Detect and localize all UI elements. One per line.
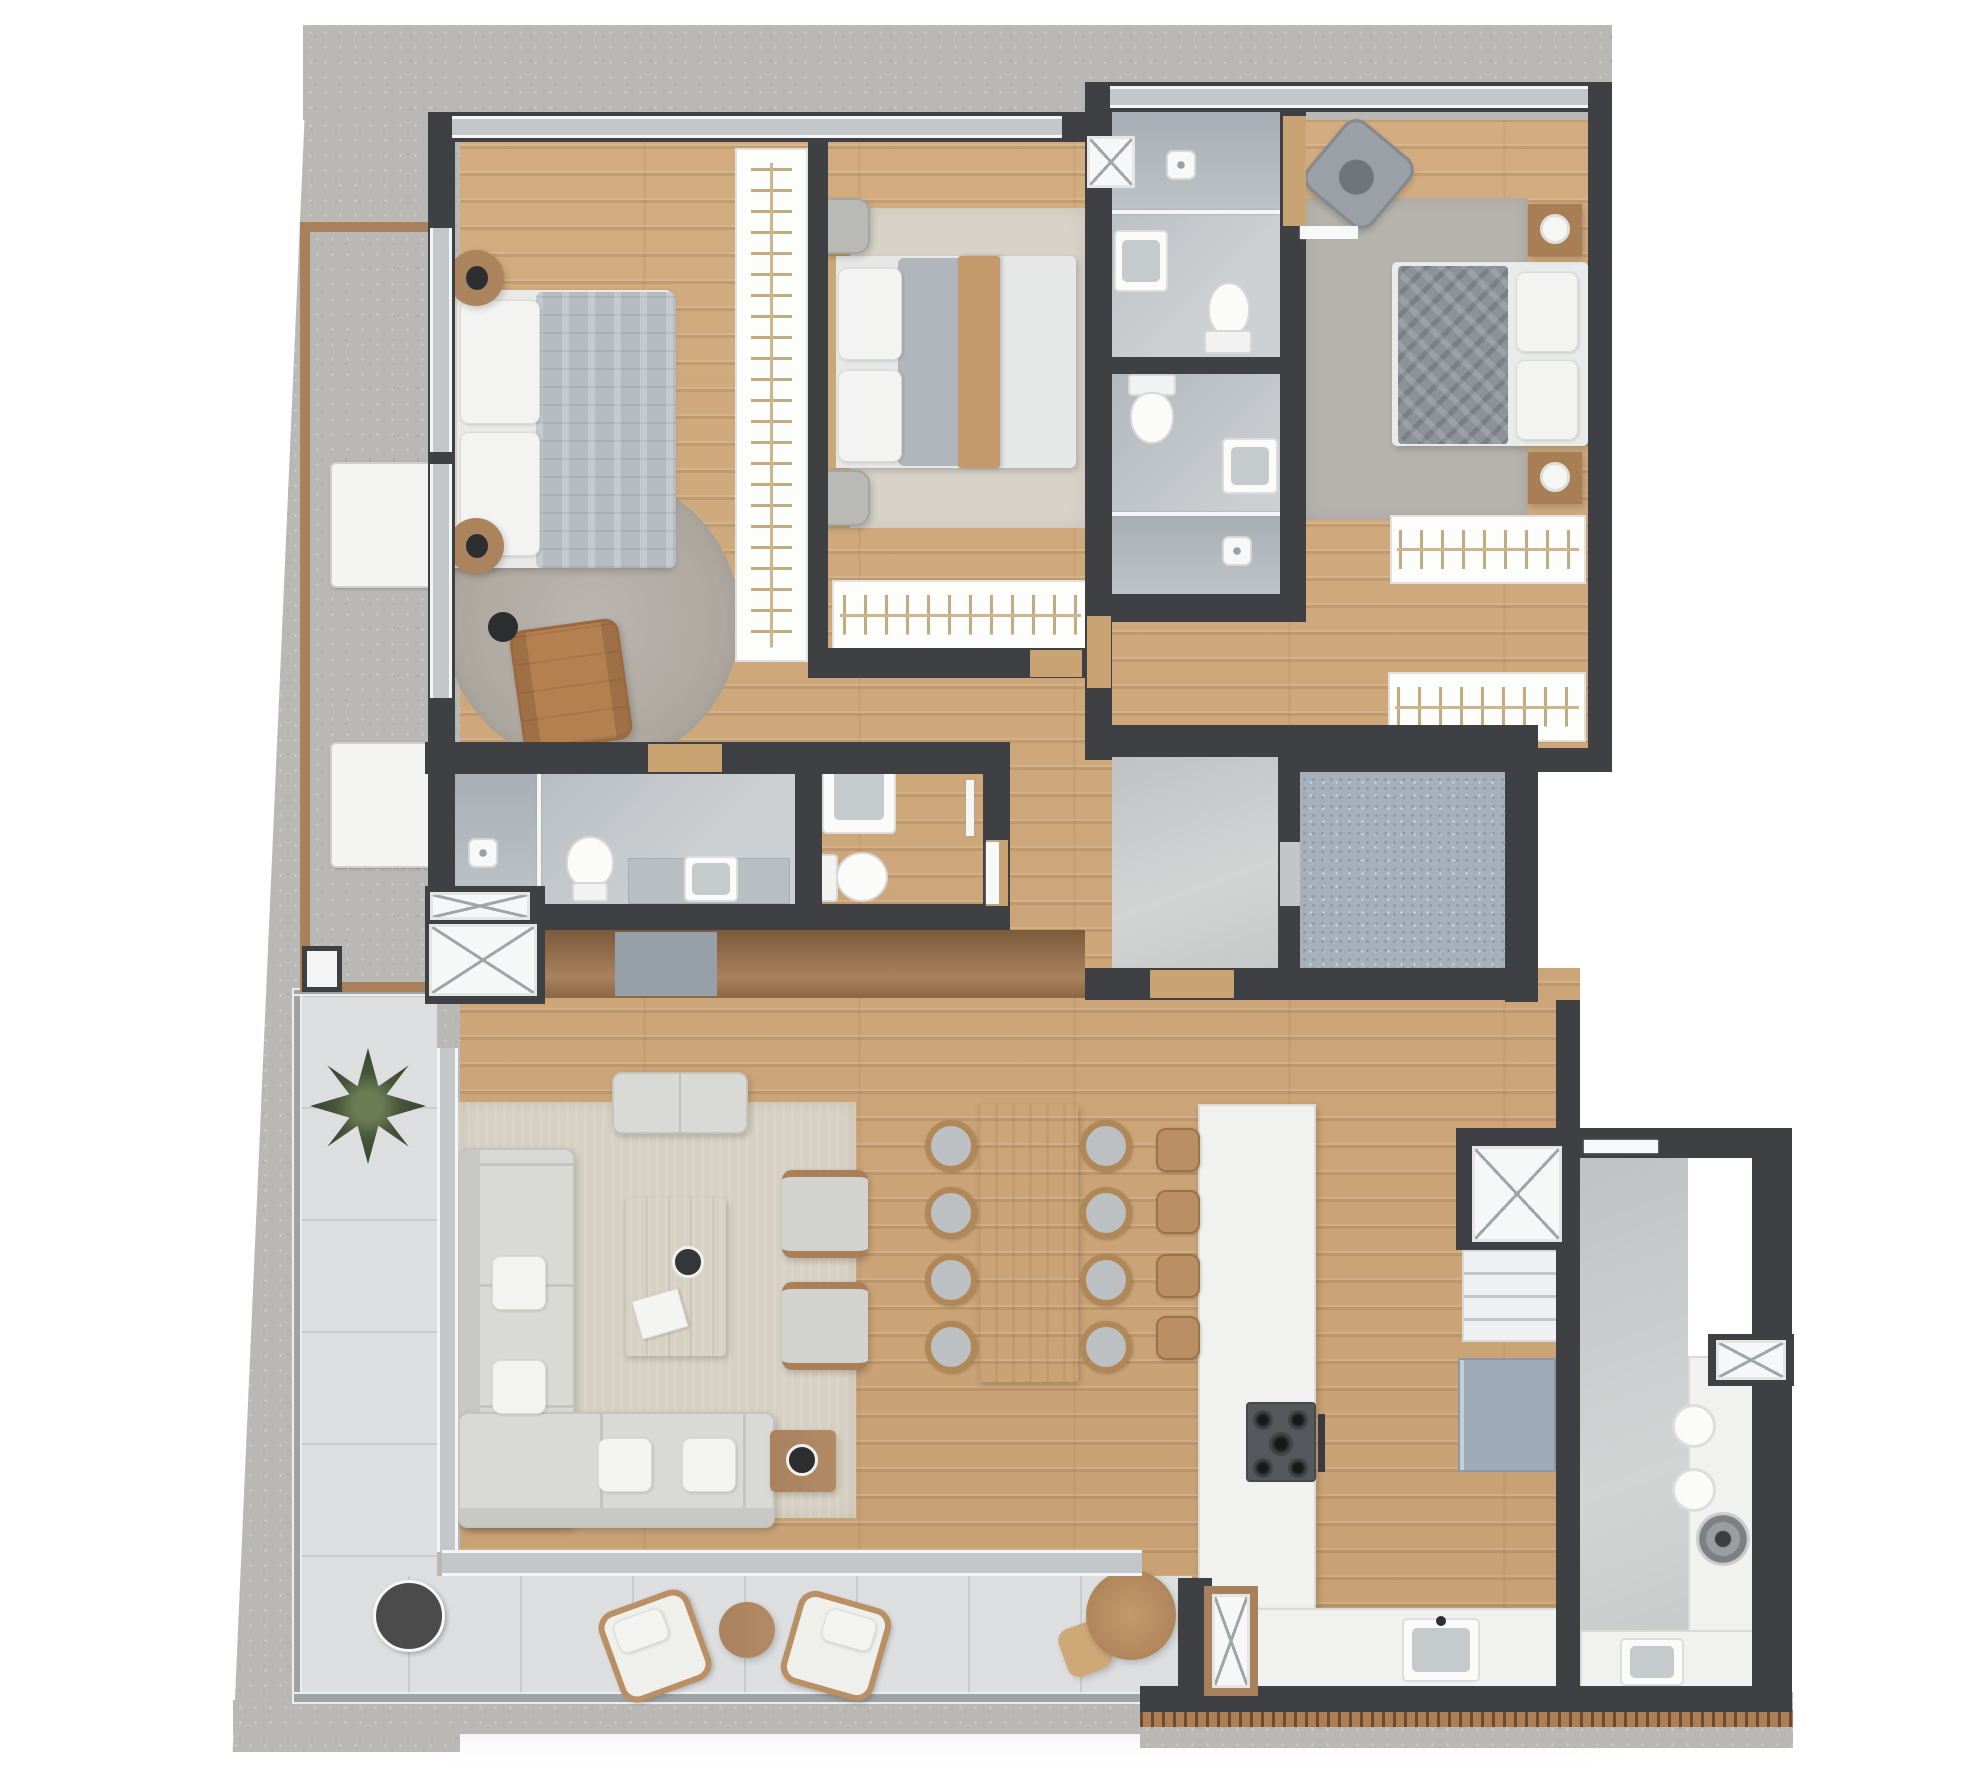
door-gap-foyer — [1150, 970, 1234, 998]
wall-kitchen-east — [1556, 1000, 1580, 1712]
dining-chair — [925, 1120, 977, 1172]
dining-chair — [925, 1187, 977, 1239]
duvet — [536, 292, 676, 568]
concrete-surround-bottom-left — [233, 1700, 1190, 1734]
sink-basin — [834, 768, 884, 820]
refrigerator — [1458, 1358, 1556, 1472]
duvet — [1398, 266, 1508, 444]
door-gap-bedroom3 — [1283, 116, 1306, 226]
balcony-vent — [302, 946, 342, 992]
ac-unit — [330, 462, 438, 588]
sink-basin — [1412, 1628, 1470, 1672]
vent-shaft-x-icon — [1087, 136, 1135, 188]
pillow — [460, 300, 540, 424]
burner — [1253, 1410, 1273, 1430]
pillow — [1516, 360, 1578, 440]
bed-throw — [958, 256, 1000, 468]
pillow — [838, 268, 902, 360]
wall-bedroom3-south — [1300, 748, 1612, 772]
clothes-rack — [832, 580, 1090, 650]
sink-basin — [1630, 1646, 1674, 1678]
window-west-2 — [430, 464, 452, 698]
dining-chair — [1080, 1254, 1132, 1306]
wall-closet-partition — [808, 142, 828, 678]
vent-shaft-x-icon — [1716, 1340, 1786, 1380]
exterior-white-step2 — [1580, 968, 1612, 1128]
table-lamp — [1540, 462, 1570, 492]
table-lamp — [466, 534, 488, 558]
window-west-1 — [430, 228, 452, 452]
outdoor-side-table — [719, 1602, 775, 1658]
washing-machine — [1696, 1512, 1750, 1566]
pillow — [1516, 272, 1578, 352]
vent-shaft-x-icon — [430, 892, 530, 920]
vent-shaft-x-icon — [1472, 1146, 1562, 1242]
ac-unit — [330, 742, 438, 868]
window-north-left — [452, 116, 1062, 138]
door-gap-bedroom2 — [1030, 650, 1082, 677]
door-leaf-powder — [986, 842, 999, 904]
dark-round-table — [373, 1580, 445, 1652]
door-leaf-bedroom3 — [1300, 226, 1358, 239]
bar-stool — [1156, 1254, 1200, 1298]
bathroom-a-glass — [1112, 210, 1280, 214]
master-shower-glass — [537, 774, 541, 904]
bathroom-b-shower — [1112, 516, 1280, 594]
wall-bedroom3-east — [1588, 82, 1612, 772]
sink-basin — [1122, 240, 1160, 282]
exterior-white-right-bottom — [1795, 1128, 1985, 1769]
accent-armchair — [782, 1282, 868, 1370]
floor-plan-stage — [0, 0, 1985, 1769]
sofa-pillow — [492, 1256, 546, 1310]
dining-chair — [925, 1321, 977, 1373]
door-gap-master-bath — [648, 744, 722, 772]
dining-chair — [1080, 1321, 1132, 1373]
pillow — [838, 370, 902, 462]
leather-armchair — [508, 617, 634, 753]
burner — [1288, 1458, 1308, 1478]
table-lamp — [786, 1444, 818, 1476]
bar-stool — [1156, 1190, 1200, 1234]
bar-stool — [1156, 1128, 1200, 1172]
foyer-floor — [1112, 757, 1278, 968]
sink-basin — [1231, 447, 1269, 485]
burner — [1288, 1410, 1308, 1430]
sofa-pillow — [598, 1438, 652, 1492]
toilet-base — [572, 882, 608, 902]
bathroom-a-shower — [1112, 112, 1280, 212]
dining-chair — [925, 1254, 977, 1306]
toilet-tank — [1204, 330, 1252, 354]
towel-bar — [966, 780, 974, 836]
sofa-pillow — [492, 1360, 546, 1414]
laundry-basin — [1672, 1468, 1716, 1512]
vent-shaft-x-icon — [1212, 1594, 1250, 1688]
clothes-rack — [1390, 515, 1586, 584]
table-lamp — [1540, 214, 1570, 244]
sideboard-gray-module — [615, 932, 717, 996]
table-lamp — [466, 266, 488, 290]
dining-chair — [1080, 1120, 1132, 1172]
wall-bath-b-south — [1085, 594, 1306, 622]
wardrobe-rail — [735, 148, 808, 662]
vent-shaft-x-icon — [429, 924, 537, 996]
laundry-basin — [1672, 1404, 1716, 1448]
master-shower — [455, 774, 539, 904]
faucet — [1436, 1616, 1446, 1626]
gas-cooktop — [1246, 1402, 1316, 1482]
wall-bath-ab-divider — [1085, 357, 1306, 374]
toilet — [1130, 392, 1174, 444]
duvet — [898, 258, 964, 466]
tray — [672, 1246, 704, 1278]
door-gap-shaft — [1280, 842, 1300, 906]
bar-stool — [1156, 1316, 1200, 1360]
oven-handle — [1318, 1414, 1325, 1472]
toilet — [836, 852, 888, 902]
glass-door-west-living — [437, 1048, 458, 1552]
glass-door-south-living — [442, 1550, 1142, 1576]
toilet — [566, 836, 614, 888]
outdoor-round-table — [1086, 1570, 1176, 1660]
shower-drain — [468, 838, 498, 868]
headrest-pillow — [819, 1606, 878, 1653]
exterior-white-step1 — [1538, 770, 1612, 968]
window-north-right — [1110, 86, 1588, 108]
burner — [1253, 1458, 1273, 1478]
wall-service-east — [1752, 1152, 1792, 1712]
wall-bath-divider — [795, 748, 822, 920]
dining-table — [978, 1104, 1078, 1382]
floor-lamp — [488, 612, 518, 642]
headrest-pillow — [611, 1606, 671, 1656]
deck-edge — [1140, 1710, 1793, 1727]
terrace-railing-left — [292, 990, 302, 1704]
toilet — [1208, 282, 1250, 336]
door-leaf-service — [1584, 1140, 1658, 1153]
burner — [1269, 1432, 1293, 1456]
bench — [612, 1072, 748, 1134]
bathroom-b-glass — [1112, 512, 1280, 516]
dining-chair — [1080, 1187, 1132, 1239]
accent-armchair — [782, 1170, 868, 1258]
sofa-pillow — [682, 1438, 736, 1492]
shaft-floor — [1300, 757, 1505, 968]
technical-balcony — [300, 222, 445, 992]
door-gap-bath-b — [1087, 616, 1111, 688]
kitchen-island — [1198, 1104, 1316, 1618]
exterior-white-right-top — [1612, 0, 1985, 1128]
shower-drain — [1166, 150, 1196, 180]
sink-basin — [692, 863, 730, 895]
shower-drain — [1222, 536, 1252, 566]
terrace-railing-bottom — [292, 1692, 1192, 1704]
